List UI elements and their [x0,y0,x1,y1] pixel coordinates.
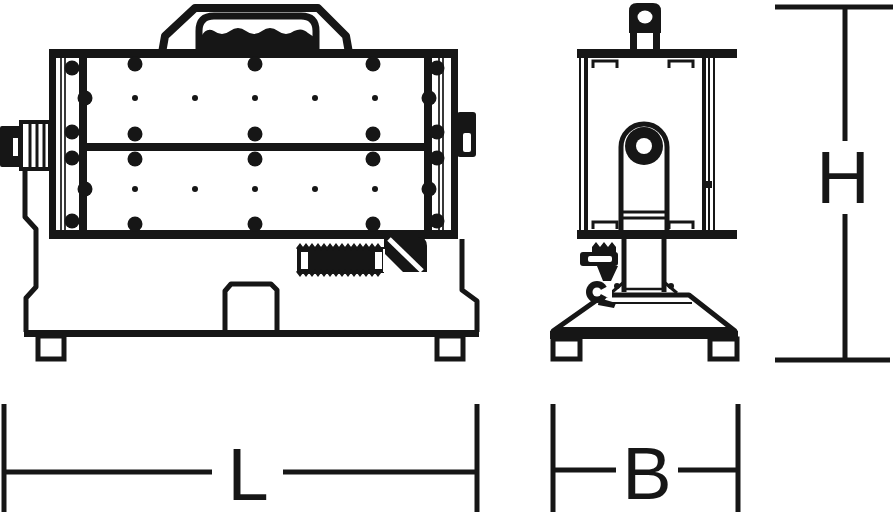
pivot-hole [636,138,652,154]
drawing-canvas: L B H [0,0,896,520]
yoke-bracket [611,124,677,293]
side-latch [457,112,476,157]
wall-boss [702,181,712,188]
tray-box [225,284,277,333]
clamp-knob [580,242,618,281]
front-view [0,8,479,359]
dimension-length: L [4,404,477,516]
dim-label-height: H [816,136,869,219]
feet-side [553,339,737,359]
dimension-width: B [553,404,738,515]
cable-gland [297,237,427,275]
power-connector [0,122,50,169]
dim-label-width: B [622,432,671,515]
dimension-height: H [775,7,893,360]
feet-front [38,336,463,359]
side-view [550,3,738,359]
clip-bottom-left [593,222,617,229]
corrugation-top [297,245,381,249]
carry-handle [162,8,349,53]
corrugation-bottom [297,271,381,275]
clip-top-left [593,61,617,68]
clip-top-right [669,61,693,68]
pedestal-base [550,295,738,339]
panel-middle-bar [84,143,431,151]
mounting-lug [629,3,661,50]
clip-bottom-right [669,222,693,229]
dim-label-length: L [227,433,268,516]
dimensional-drawing: L B H [0,0,896,520]
housing-frame [49,49,458,239]
